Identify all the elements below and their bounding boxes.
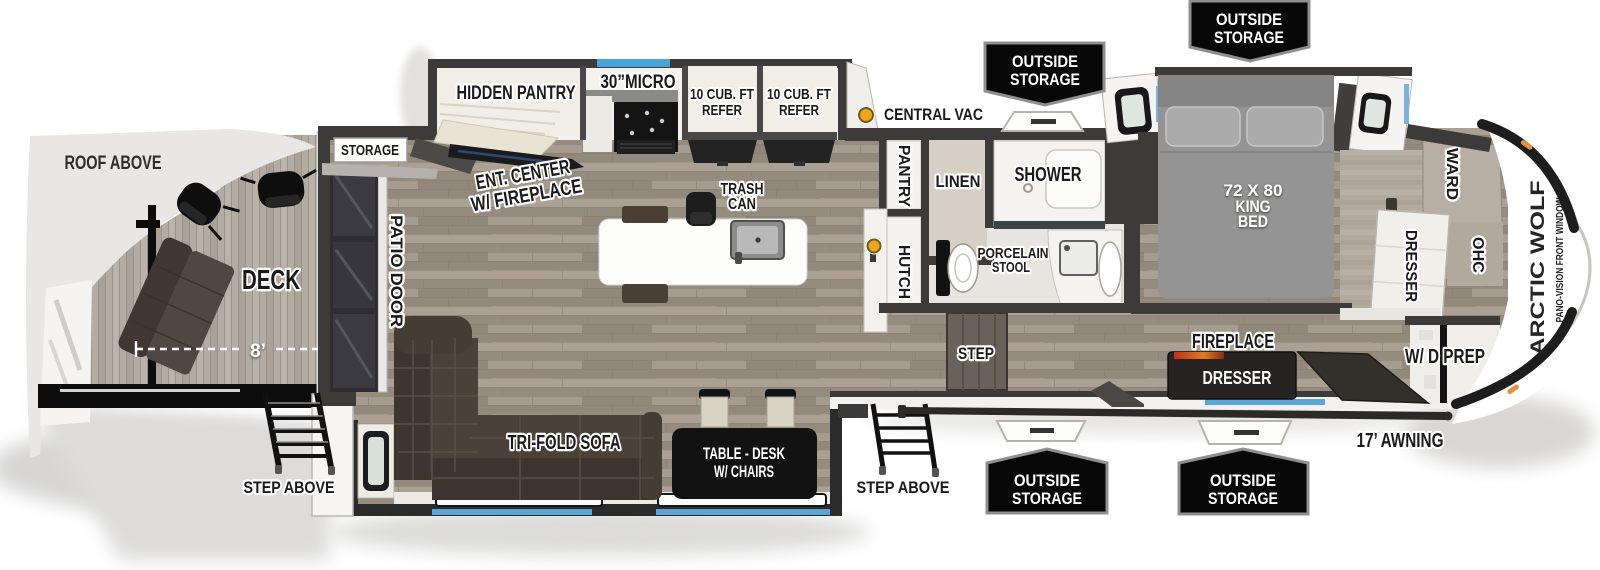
svg-text:TRI-FOLD SOFA: TRI-FOLD SOFA [508, 432, 621, 454]
svg-text:ROOF ABOVE: ROOF ABOVE [65, 153, 162, 174]
svg-text:10 CUB. FT: 10 CUB. FT [690, 86, 754, 103]
svg-text:STORAGE: STORAGE [341, 142, 399, 159]
svg-text:STORAGE: STORAGE [1012, 489, 1082, 508]
svg-text:FIREPLACE: FIREPLACE [1192, 331, 1274, 353]
svg-text:REFER: REFER [702, 102, 742, 119]
svg-text:OUTSIDE: OUTSIDE [1216, 10, 1282, 29]
svg-text:PANO-VISION FRONT WINDOW: PANO-VISION FRONT WINDOW [1555, 197, 1566, 322]
svg-text:DRESSER: DRESSER [1402, 230, 1419, 302]
svg-text:HUTCH: HUTCH [895, 245, 912, 299]
svg-text:W/ CHAIRS: W/ CHAIRS [714, 462, 774, 481]
svg-text:OHC: OHC [1469, 237, 1486, 273]
svg-text:STORAGE: STORAGE [1208, 489, 1278, 508]
svg-text:STORAGE: STORAGE [1010, 70, 1080, 89]
svg-text:OUTSIDE: OUTSIDE [1012, 52, 1078, 71]
svg-text:CAN: CAN [728, 196, 756, 213]
svg-text:LINEN: LINEN [936, 172, 981, 191]
svg-text:10 CUB. FT: 10 CUB. FT [767, 86, 831, 103]
svg-text:17’ AWNING: 17’ AWNING [1357, 430, 1444, 452]
svg-text:TABLE - DESK: TABLE - DESK [703, 444, 785, 463]
svg-text:30”MICRO: 30”MICRO [601, 72, 676, 93]
svg-text:OUTSIDE: OUTSIDE [1014, 471, 1080, 490]
svg-text:BED: BED [1238, 212, 1268, 231]
svg-text:DECK: DECK [242, 264, 300, 295]
svg-text:WARD: WARD [1443, 148, 1460, 200]
svg-text:STEP ABOVE: STEP ABOVE [857, 478, 950, 497]
svg-text:STORAGE: STORAGE [1214, 28, 1284, 47]
svg-text:PATIO DOOR: PATIO DOOR [387, 215, 406, 327]
svg-text:8’: 8’ [250, 341, 266, 362]
svg-text:HIDDEN PANTRY: HIDDEN PANTRY [457, 83, 576, 104]
svg-text:STEP: STEP [958, 344, 994, 363]
svg-text:ARCTIC WOLF: ARCTIC WOLF [1528, 181, 1549, 356]
svg-text:DRESSER: DRESSER [1203, 368, 1272, 388]
svg-text:W/ D PREP: W/ D PREP [1405, 346, 1485, 368]
svg-text:STOOL: STOOL [992, 259, 1030, 276]
svg-text:OUTSIDE: OUTSIDE [1210, 471, 1276, 490]
svg-text:STEP ABOVE: STEP ABOVE [244, 478, 335, 497]
svg-text:CENTRAL VAC: CENTRAL VAC [884, 105, 983, 124]
svg-text:SHOWER: SHOWER [1015, 164, 1082, 186]
svg-text:PANTRY: PANTRY [895, 145, 912, 207]
svg-text:REFER: REFER [779, 102, 819, 119]
